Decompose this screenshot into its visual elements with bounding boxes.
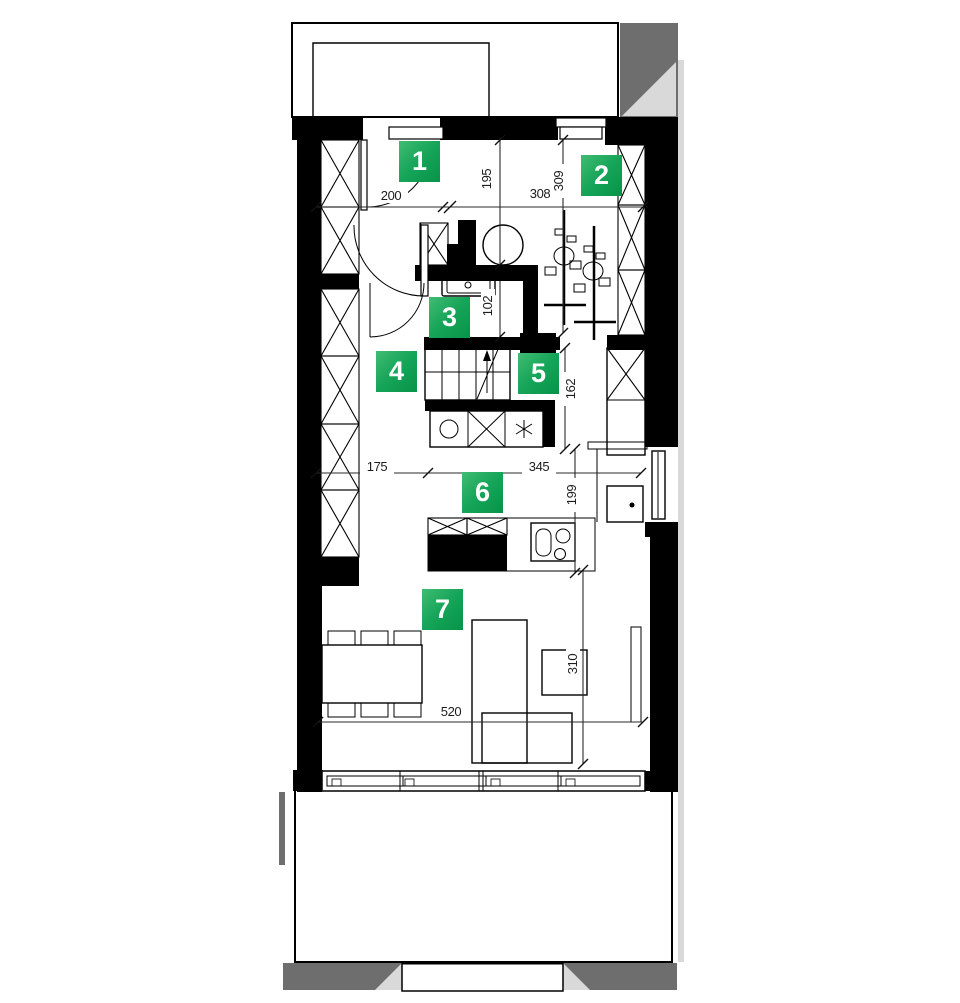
upper-porch [292, 23, 618, 117]
room-marker-7[interactable]: 7 [422, 589, 463, 630]
dim-309: 309 [552, 164, 566, 198]
dim-175: 175 [360, 460, 394, 474]
hall-door [354, 225, 428, 296]
dim-520: 520 [434, 705, 468, 719]
dim-200: 200 [374, 189, 408, 203]
hob-symbol [516, 420, 532, 438]
room-marker-4[interactable]: 4 [376, 351, 417, 392]
dim-102: 102 [481, 289, 495, 323]
wall-hatch-left [321, 140, 359, 557]
room-marker-3[interactable]: 3 [429, 297, 470, 338]
kitchen-sink [531, 523, 575, 561]
kitchen-counter-row [430, 411, 543, 447]
dim-345: 345 [522, 460, 556, 474]
room-marker-6[interactable]: 6 [462, 472, 503, 513]
bottom-window-band [322, 771, 645, 791]
room-marker-2[interactable]: 2 [581, 155, 622, 196]
bicycle-2 [574, 226, 616, 340]
bicycle-1 [544, 210, 586, 325]
dim-199: 199 [565, 478, 579, 512]
room-marker-1[interactable]: 1 [399, 141, 440, 182]
dim-310: 310 [566, 647, 580, 681]
garden-steps [402, 962, 563, 991]
wall-hatch-right [618, 145, 645, 335]
closet [607, 348, 645, 455]
main-entrance [588, 442, 665, 522]
room-marker-5[interactable]: 5 [518, 353, 559, 394]
lower-terrace [295, 790, 672, 962]
tv-board [631, 627, 641, 722]
dim-195: 195 [480, 162, 494, 196]
sofa [472, 620, 572, 763]
top-window [556, 118, 606, 139]
round-table [483, 225, 523, 265]
staircase [425, 345, 510, 400]
dim-162: 162 [564, 372, 578, 406]
floor-plan-canvas: 200 195 308 309 102 162 175 345 199 520 … [0, 0, 960, 1003]
dining-set [322, 631, 422, 717]
